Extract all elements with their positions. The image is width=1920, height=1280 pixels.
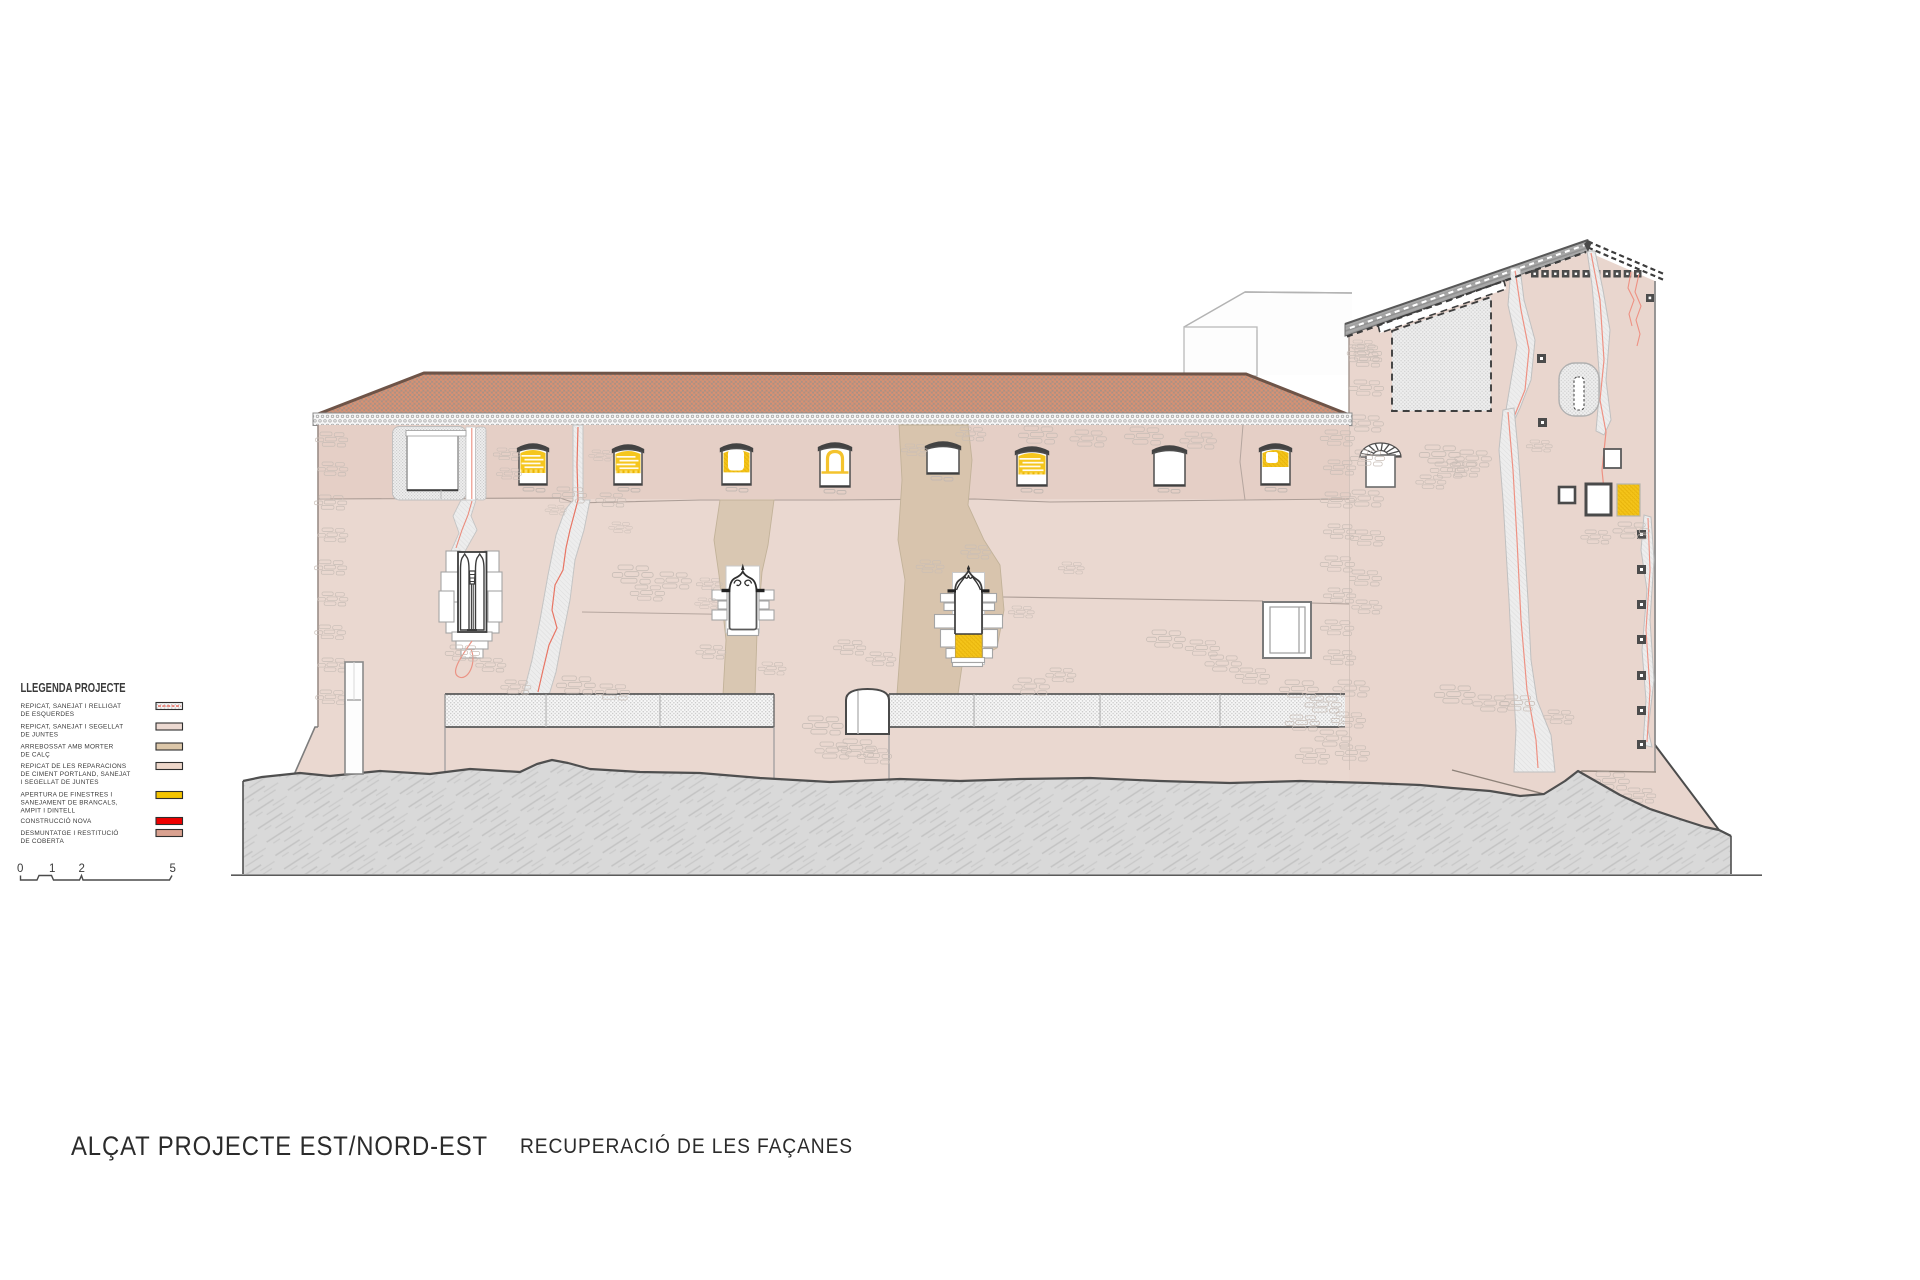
svg-text:DE CIMENT PORTLAND, SANEJAT: DE CIMENT PORTLAND, SANEJAT xyxy=(21,771,131,778)
svg-text:REPICAT, SANEJAT I SEGELLAT: REPICAT, SANEJAT I SEGELLAT xyxy=(21,724,124,731)
svg-text:1: 1 xyxy=(49,863,55,875)
svg-text:RECUPERACIÓ DE LES FAÇANES: RECUPERACIÓ DE LES FAÇANES xyxy=(520,1133,853,1158)
svg-text:REPICAT, SANEJAT I RELLIGAT: REPICAT, SANEJAT I RELLIGAT xyxy=(21,703,122,710)
svg-text:LLEGENDA PROJECTE: LLEGENDA PROJECTE xyxy=(21,681,126,695)
svg-text:0: 0 xyxy=(17,863,23,875)
svg-text:DE CALÇ: DE CALÇ xyxy=(21,752,51,759)
svg-text:AMPIT I DINTELL: AMPIT I DINTELL xyxy=(21,808,76,815)
svg-text:CONSTRUCCIÓ NOVA: CONSTRUCCIÓ NOVA xyxy=(21,816,92,825)
svg-text:5: 5 xyxy=(170,863,176,875)
svg-text:2: 2 xyxy=(79,863,85,875)
svg-text:APERTURA DE FINESTRES I: APERTURA DE FINESTRES I xyxy=(21,792,113,799)
svg-text:DE COBERTA: DE COBERTA xyxy=(21,838,65,845)
svg-text:DESMUNTATGE I RESTITUCIÓ: DESMUNTATGE I RESTITUCIÓ xyxy=(21,828,119,837)
svg-text:ARREBOSSAT AMB MORTER: ARREBOSSAT AMB MORTER xyxy=(21,744,114,751)
svg-text:DE JUNTES: DE JUNTES xyxy=(21,732,59,739)
svg-text:ALÇAT PROJECTE EST/NORD-EST: ALÇAT PROJECTE EST/NORD-EST xyxy=(71,1131,488,1161)
svg-text:I SEGELLAT DE JUNTES: I SEGELLAT DE JUNTES xyxy=(21,779,99,786)
svg-text:DE ESQUERDES: DE ESQUERDES xyxy=(21,711,75,718)
svg-text:SANEJAMENT DE BRANCALS,: SANEJAMENT DE BRANCALS, xyxy=(21,800,118,807)
svg-text:REPICAT DE LES REPARACIONS: REPICAT DE LES REPARACIONS xyxy=(21,763,127,770)
